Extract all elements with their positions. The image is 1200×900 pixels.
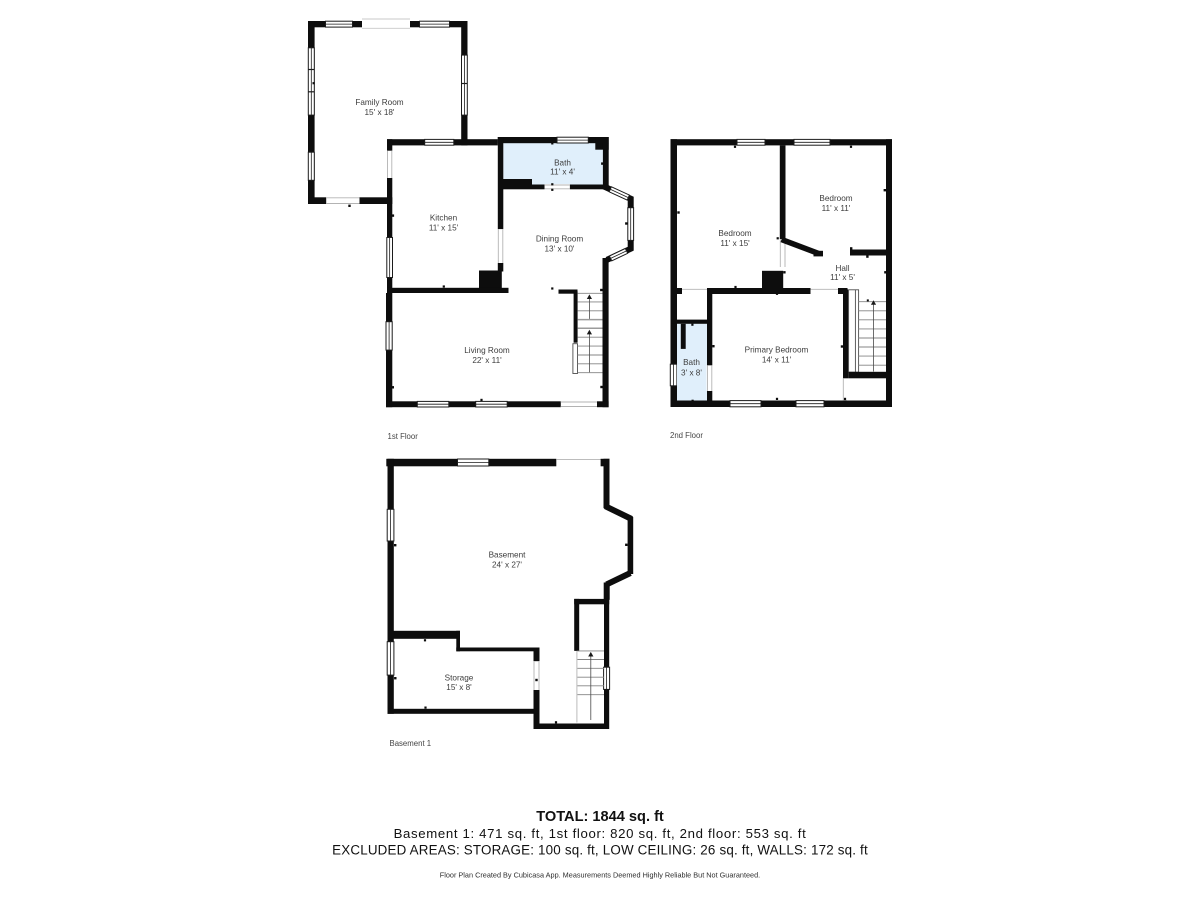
svg-text:TOTAL: 1844 sq. ft: TOTAL: 1844 sq. ft: [536, 809, 664, 825]
svg-text:11' x 4': 11' x 4': [550, 168, 575, 177]
svg-text:Primary Bedroom: Primary Bedroom: [745, 346, 809, 355]
svg-text:Bath: Bath: [683, 358, 700, 367]
svg-text:Floor Plan Created By Cubicasa: Floor Plan Created By Cubicasa App. Meas…: [440, 870, 760, 879]
svg-text:15' x 18': 15' x 18': [365, 108, 395, 117]
svg-text:22' x 11': 22' x 11': [472, 356, 502, 365]
svg-text:Basement: Basement: [489, 551, 527, 560]
svg-text:Storage: Storage: [445, 674, 474, 683]
svg-text:3' x 8': 3' x 8': [681, 368, 702, 377]
svg-text:11' x 11': 11' x 11': [822, 204, 851, 213]
svg-text:Living Room: Living Room: [464, 346, 510, 355]
svg-text:15' x 8': 15' x 8': [446, 683, 472, 692]
svg-text:11' x 15': 11' x 15': [720, 239, 750, 248]
svg-text:Kitchen: Kitchen: [430, 214, 458, 223]
svg-text:Basement 1: Basement 1: [390, 739, 432, 748]
svg-text:Bedroom: Bedroom: [819, 194, 852, 203]
svg-text:Hall: Hall: [835, 264, 849, 273]
svg-text:13' x 10': 13' x 10': [545, 245, 575, 254]
svg-text:1st Floor: 1st Floor: [388, 432, 419, 441]
svg-text:11' x 15': 11' x 15': [429, 224, 459, 233]
svg-text:Dining Room: Dining Room: [536, 235, 584, 244]
svg-text:2nd Floor: 2nd Floor: [670, 431, 703, 440]
svg-text:14' x 11': 14' x 11': [762, 356, 792, 365]
svg-text:11' x 5': 11' x 5': [830, 273, 855, 282]
svg-text:EXCLUDED AREAS: STORAGE: 100 s: EXCLUDED AREAS: STORAGE: 100 sq. ft, LOW…: [332, 842, 868, 857]
svg-text:Basement 1: 471 sq. ft, 1st fl: Basement 1: 471 sq. ft, 1st floor: 820 s…: [394, 826, 807, 841]
svg-text:Bath: Bath: [554, 159, 571, 168]
svg-text:24' x 27': 24' x 27': [492, 561, 522, 570]
svg-text:Bedroom: Bedroom: [718, 229, 751, 238]
svg-text:Family Room: Family Room: [355, 98, 403, 107]
